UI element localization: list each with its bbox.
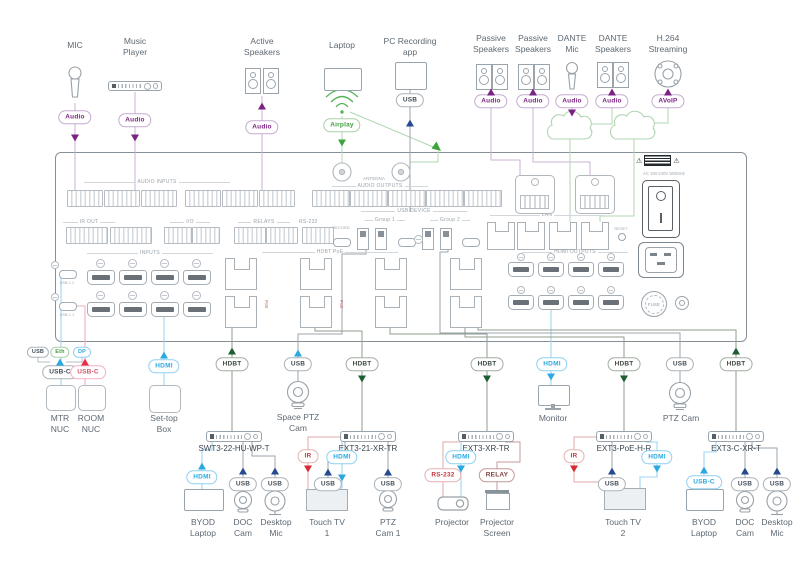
screw xyxy=(547,253,555,261)
hdmi-input-port xyxy=(87,302,115,317)
ptz-cam1-label: PTZ Cam 1 xyxy=(370,517,406,538)
hdbt-pill: HDBT xyxy=(346,357,379,371)
projector-icon xyxy=(438,497,468,510)
arrow-up xyxy=(81,359,89,366)
hdbt-pill: HDBT xyxy=(608,357,641,371)
ir-pill: IR xyxy=(564,449,585,463)
speaker-icon xyxy=(263,68,279,94)
terminal-block xyxy=(141,190,177,207)
screw xyxy=(607,253,615,261)
terminal-block xyxy=(66,227,108,244)
hdmi-input-port xyxy=(151,302,179,317)
hdbt-port xyxy=(450,296,482,328)
settop-box-icon xyxy=(149,385,181,413)
screw xyxy=(128,259,137,268)
warning-icon: ⚠ xyxy=(636,157,642,165)
hdmi-input-port xyxy=(119,302,147,317)
usb-pill: USB xyxy=(731,477,759,491)
ac-rating-label: AC 100-240V 50/60Hz xyxy=(643,171,685,176)
speaker-icon xyxy=(613,62,629,88)
hdmi-pill: HDMI xyxy=(326,450,357,464)
terminal-block xyxy=(388,190,426,207)
terminal-block xyxy=(67,190,103,207)
terminal-block xyxy=(259,190,295,207)
music-player-icon xyxy=(108,81,162,91)
hdbt-pill: HDBT xyxy=(216,357,249,371)
screw xyxy=(51,261,59,269)
usb-group1-section: Group 1 xyxy=(363,217,407,223)
usb-pill: USB xyxy=(598,477,626,491)
hdbt-pill: HDBT xyxy=(720,357,753,371)
warning-text-block xyxy=(644,155,671,166)
usbc-input-port xyxy=(59,270,77,279)
dante-speakers-label: DANTE Speakers xyxy=(590,33,636,54)
speaker-icon xyxy=(492,64,508,90)
power-switch xyxy=(642,180,680,238)
audio-pill: Audio xyxy=(118,113,151,127)
hdmi-pill: HDMI xyxy=(536,357,567,371)
arrow-up xyxy=(239,468,247,475)
mtr-nuc-label: MTR NUC xyxy=(44,413,76,434)
lan-port xyxy=(487,222,515,250)
arrow-up xyxy=(324,469,332,476)
eth-proto-pill: Eth xyxy=(50,347,69,358)
usb-pill: USB xyxy=(374,477,402,491)
usbc-record-port xyxy=(333,238,351,247)
speaker-icon xyxy=(245,68,261,94)
screw xyxy=(51,293,59,301)
audio-pill: Audio xyxy=(516,94,549,108)
hdmi-pill: HDMI xyxy=(641,450,672,464)
h264-streaming-label: H.264 Streaming xyxy=(642,33,694,54)
projector-screen-icon xyxy=(486,493,510,510)
speaker-out-plate xyxy=(515,175,555,214)
hdmi-input-port xyxy=(183,270,211,285)
byod-laptop-icon xyxy=(184,489,224,511)
terminal-block xyxy=(350,190,388,207)
screw xyxy=(96,291,105,300)
usb-device-section: USB DEVICE xyxy=(359,208,469,214)
arrow-up xyxy=(294,350,302,357)
hdmi-output-port xyxy=(598,295,624,310)
swt3-name: SWT3-22-HU-WP-T xyxy=(198,444,269,453)
poe-label: PoE xyxy=(264,300,269,309)
ir-out-section: IR OUT xyxy=(61,219,117,225)
cloud-icon xyxy=(548,111,655,139)
audio-outputs-section: AUDIO OUTPUTS xyxy=(330,183,430,189)
hdmi-output-port xyxy=(508,262,534,277)
relay-pill: RELAY xyxy=(479,468,515,482)
arrow-up xyxy=(741,468,749,475)
hdmi-output-port xyxy=(538,262,564,277)
terminal-block xyxy=(464,190,502,207)
passive-speakers-1-label: Passive Speakers xyxy=(471,33,511,54)
arrow-up xyxy=(664,89,672,96)
arrow-up xyxy=(384,469,392,476)
touch-tv-icon xyxy=(306,489,348,511)
ground-screw-center xyxy=(679,300,685,306)
speaker-icon xyxy=(476,64,492,90)
arrow-up xyxy=(228,348,236,355)
ext3-xr-icon xyxy=(458,431,514,442)
record-label: RECORD xyxy=(332,225,349,230)
avoip-pill: AVoIP xyxy=(651,94,684,108)
dp-proto-pill: DP xyxy=(73,347,91,358)
hdmi-input-port xyxy=(151,270,179,285)
hdmi-output-port xyxy=(568,295,594,310)
screw xyxy=(517,286,525,294)
room-nuc-icon xyxy=(78,385,106,411)
hdbt-port xyxy=(375,258,407,290)
usbc-pill: USB-C xyxy=(70,365,106,379)
arrow-down xyxy=(338,140,346,147)
antenna-label: ANTENNA xyxy=(363,176,385,181)
hdmi-pill: HDMI xyxy=(445,450,476,464)
lan-port xyxy=(581,222,609,250)
arrow-up xyxy=(198,463,206,470)
music-player-label: Music Player xyxy=(113,36,157,57)
screw xyxy=(414,235,423,244)
io-section: I/O xyxy=(168,219,212,225)
doc-cam-label: DOC Cam xyxy=(228,517,258,538)
arrow-down xyxy=(620,376,628,383)
reset-button xyxy=(618,233,626,241)
screw xyxy=(192,291,201,300)
usbc2-label: USB-C 2 xyxy=(60,281,74,285)
screw xyxy=(160,259,169,268)
ptz-cam-label: PTZ Cam xyxy=(659,413,703,424)
arrow-down xyxy=(304,466,312,473)
passive-speakers-2-label: Passive Speakers xyxy=(513,33,553,54)
screw xyxy=(577,253,585,261)
arrow-up xyxy=(258,103,266,110)
byod-laptop-label: BYOD Laptop xyxy=(183,517,223,538)
power-inlet xyxy=(638,242,684,278)
usbc1-label: USB-C 1 xyxy=(60,313,74,317)
usb-pill: USB xyxy=(666,357,694,371)
ext3-c-icon xyxy=(708,431,764,442)
desktop-mic-label: Desktop Mic xyxy=(756,517,798,538)
lan-port xyxy=(517,222,545,250)
pc-recording-label: PC Recording app xyxy=(378,36,442,57)
hdmi-input-port xyxy=(183,302,211,317)
hdbt-port xyxy=(225,296,257,328)
usb-group2-section: Group 2 xyxy=(428,217,472,223)
usb-a-port xyxy=(440,228,452,250)
dante-mic-label: DANTE Mic xyxy=(554,33,590,54)
hdbt-port xyxy=(225,258,257,290)
hdbt-port xyxy=(450,258,482,290)
terminal-block xyxy=(266,227,298,244)
hdmi-pill: HDMI xyxy=(186,470,217,484)
audio-pill: Audio xyxy=(58,110,91,124)
arrow-up xyxy=(773,468,781,475)
space-ptz-label: Space PTZ Cam xyxy=(274,412,322,433)
arrow-up xyxy=(487,89,495,96)
audio-pill: Audio xyxy=(595,94,628,108)
speaker-icon xyxy=(597,62,613,88)
byod-laptop-icon xyxy=(686,489,724,511)
arrow-down xyxy=(570,466,578,473)
inputs-section: INPUTS xyxy=(85,250,215,256)
screw xyxy=(517,253,525,261)
desktop-mic-label: Desktop Mic xyxy=(255,517,297,538)
hdbt-pill: HDBT xyxy=(471,357,504,371)
audio-lines xyxy=(75,92,590,190)
audio-pill: Audio xyxy=(555,94,588,108)
hdbt-section: HDBT PoE xyxy=(260,249,400,255)
usbc-input-port xyxy=(59,302,77,311)
screw xyxy=(128,291,137,300)
lan-port xyxy=(549,222,577,250)
ext3-21-icon xyxy=(340,431,396,442)
monitor-icon xyxy=(538,385,570,406)
arrow-up xyxy=(700,467,708,474)
terminal-block xyxy=(110,227,152,244)
monitor-label: Monitor xyxy=(531,413,575,424)
touch-tv1-label: Touch TV 1 xyxy=(309,517,345,538)
usb-a-port xyxy=(422,228,434,250)
speaker-icon xyxy=(518,64,534,90)
arrow-down xyxy=(71,135,79,142)
audio-inputs-section: AUDIO INPUTS xyxy=(82,179,232,185)
usb-pill: USB xyxy=(763,477,791,491)
ext3-c-name: EXT3-C-XR-T xyxy=(711,444,761,453)
terminal-block xyxy=(164,227,192,244)
usb-proto-pill: USB xyxy=(27,347,49,358)
usb-pill: USB xyxy=(284,357,312,371)
audio-pill: Audio xyxy=(245,120,278,134)
laptop-label: Laptop xyxy=(317,40,367,51)
laptop-icon xyxy=(324,68,362,91)
swt3-wallplate-icon xyxy=(206,431,262,442)
arrow-up xyxy=(271,468,279,475)
arrow-up xyxy=(56,359,64,366)
warning-sticker: ⚠ ⚠ xyxy=(636,155,680,166)
arrow-down xyxy=(547,374,555,381)
speaker-out-plate xyxy=(575,175,615,214)
relays-section: RELAYS xyxy=(236,219,292,225)
speaker-icon xyxy=(534,64,550,90)
arrow-down xyxy=(457,466,465,473)
av-system-diagram: MIC Music Player Active Speakers Laptop … xyxy=(0,0,800,573)
arrow-up xyxy=(608,468,616,475)
touch-tv2-label: Touch TV 2 xyxy=(605,517,641,538)
hdbt-port xyxy=(300,296,332,328)
touch-tv-icon xyxy=(604,488,646,510)
arrow-down xyxy=(483,376,491,383)
reset-label: RESET xyxy=(614,226,627,231)
hdmi-output-port xyxy=(598,262,624,277)
mic-label: MIC xyxy=(55,40,95,51)
terminal-block xyxy=(234,227,266,244)
hdbt-port xyxy=(300,258,332,290)
hdmi-output-port xyxy=(568,262,594,277)
arrow-down xyxy=(653,466,661,473)
poe-label: PoE xyxy=(339,300,344,309)
audio-pill: Audio xyxy=(474,94,507,108)
hdbt-port xyxy=(375,296,407,328)
arrow-down xyxy=(358,376,366,383)
terminal-block xyxy=(192,227,220,244)
usb-pill: USB xyxy=(229,477,257,491)
screw xyxy=(192,259,201,268)
screw xyxy=(160,291,169,300)
terminal-block xyxy=(426,190,464,207)
warning-icon: ⚠ xyxy=(673,157,679,165)
mtr-nuc-icon xyxy=(46,385,76,411)
usb-a-port xyxy=(375,228,387,250)
ext3-poe-icon xyxy=(596,431,652,442)
airplay-pill: Airplay xyxy=(323,118,360,132)
room-nuc-label: ROOM NUC xyxy=(73,413,109,434)
arrow-down xyxy=(338,475,346,482)
monitor-base xyxy=(545,408,561,410)
settop-box-label: Set-top Box xyxy=(144,413,184,434)
arrow-up xyxy=(608,89,616,96)
arrow-up xyxy=(732,348,740,355)
screw xyxy=(607,286,615,294)
arrow-down xyxy=(131,135,139,142)
screw xyxy=(577,286,585,294)
usb-pill: USB xyxy=(396,93,424,107)
byod-laptop-label: BYOD Laptop xyxy=(684,517,724,538)
arrow-up xyxy=(406,120,414,127)
usb-a-port xyxy=(357,228,369,250)
streaming-camera-icon xyxy=(655,61,681,87)
terminal-block xyxy=(185,190,221,207)
screw xyxy=(96,259,105,268)
active-speakers-label: Active Speakers xyxy=(234,36,290,57)
arrow-up xyxy=(160,352,168,359)
usb-pill: USB xyxy=(261,477,289,491)
rs232-section: RS-232 xyxy=(299,219,333,225)
hdmi-pill: HDMI xyxy=(148,359,179,373)
projector-screen-label: Projector Screen xyxy=(476,517,518,538)
hdmi-input-port xyxy=(119,270,147,285)
terminal-block xyxy=(302,227,334,244)
hdmi-output-port xyxy=(508,295,534,310)
hdmi-output-port xyxy=(538,295,564,310)
ir-pill: IR xyxy=(298,449,319,463)
terminal-block xyxy=(104,190,140,207)
arrow-down xyxy=(568,110,576,117)
terminal-block xyxy=(222,190,258,207)
projector-label: Projector xyxy=(427,517,477,528)
screw xyxy=(547,286,555,294)
usbc-port xyxy=(462,238,480,247)
hdmi-input-port xyxy=(87,270,115,285)
pc-recording-icon xyxy=(395,62,427,90)
arrow-up xyxy=(529,89,537,96)
terminal-block xyxy=(312,190,350,207)
fuse-holder: FUSE xyxy=(641,291,667,317)
usbc-pill: USB-C xyxy=(686,475,722,489)
